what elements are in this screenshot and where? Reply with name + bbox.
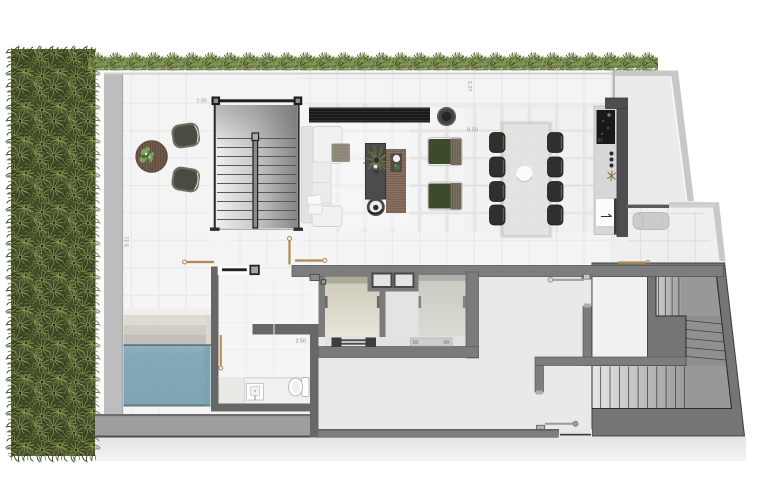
svg-text:02: 02 [598,138,603,143]
svg-text:9.31: 9.31 [125,237,131,248]
svg-text:2.50: 2.50 [296,339,307,345]
svg-text:5.27: 5.27 [466,81,472,92]
svg-text:2.95: 2.95 [197,99,208,105]
svg-text:8.50: 8.50 [467,128,478,134]
